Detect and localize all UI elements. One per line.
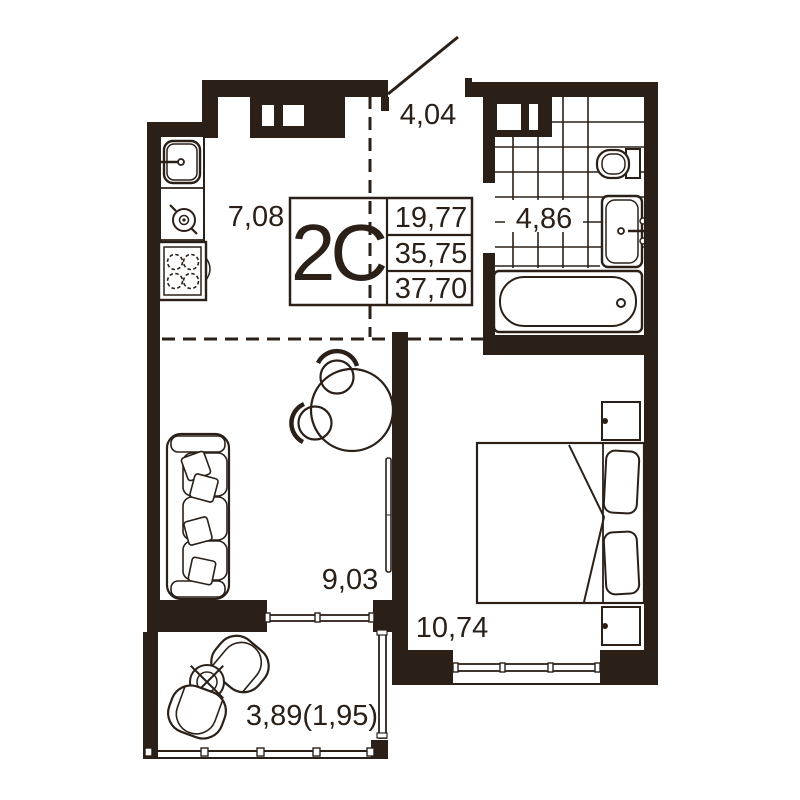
living-balcony-window-icon	[265, 613, 374, 622]
nightstand-icon	[602, 402, 640, 440]
stove-icon	[159, 242, 210, 300]
sofa-icon	[167, 434, 229, 599]
bathroom-area-label: 4,86	[516, 203, 572, 235]
hallway-area-label: 4,04	[400, 99, 456, 131]
unit-stat-1: 19,77	[395, 202, 468, 234]
living-area-label: 9,03	[322, 564, 378, 596]
bedroom-area-label: 10,74	[416, 612, 489, 644]
tv-panel-icon	[386, 458, 391, 572]
balcony-area-label: 3,89(1,95)	[246, 700, 378, 732]
nightstand-icon	[602, 607, 640, 645]
bathtub-icon	[494, 271, 642, 332]
unit-info-box: 2C 19,77 35,75 37,70	[290, 198, 472, 305]
balcony-glazing	[377, 630, 387, 738]
toilet-icon	[597, 149, 640, 178]
unit-stat-3: 37,70	[395, 273, 468, 305]
unit-stat-2: 35,75	[395, 238, 468, 270]
floor-plan-drawing: 2C 19,77 35,75 37,70 7,08 4,04 4,86 9,03…	[0, 0, 800, 800]
balcony-railing	[143, 748, 388, 758]
bedroom-window-icon	[453, 663, 600, 672]
bed-icon	[477, 443, 644, 603]
floor-plan: 2C 19,77 35,75 37,70 7,08 4,04 4,86 9,03…	[0, 0, 800, 800]
washbasin-icon	[602, 196, 646, 267]
kitchen-area-label: 7,08	[228, 201, 284, 233]
